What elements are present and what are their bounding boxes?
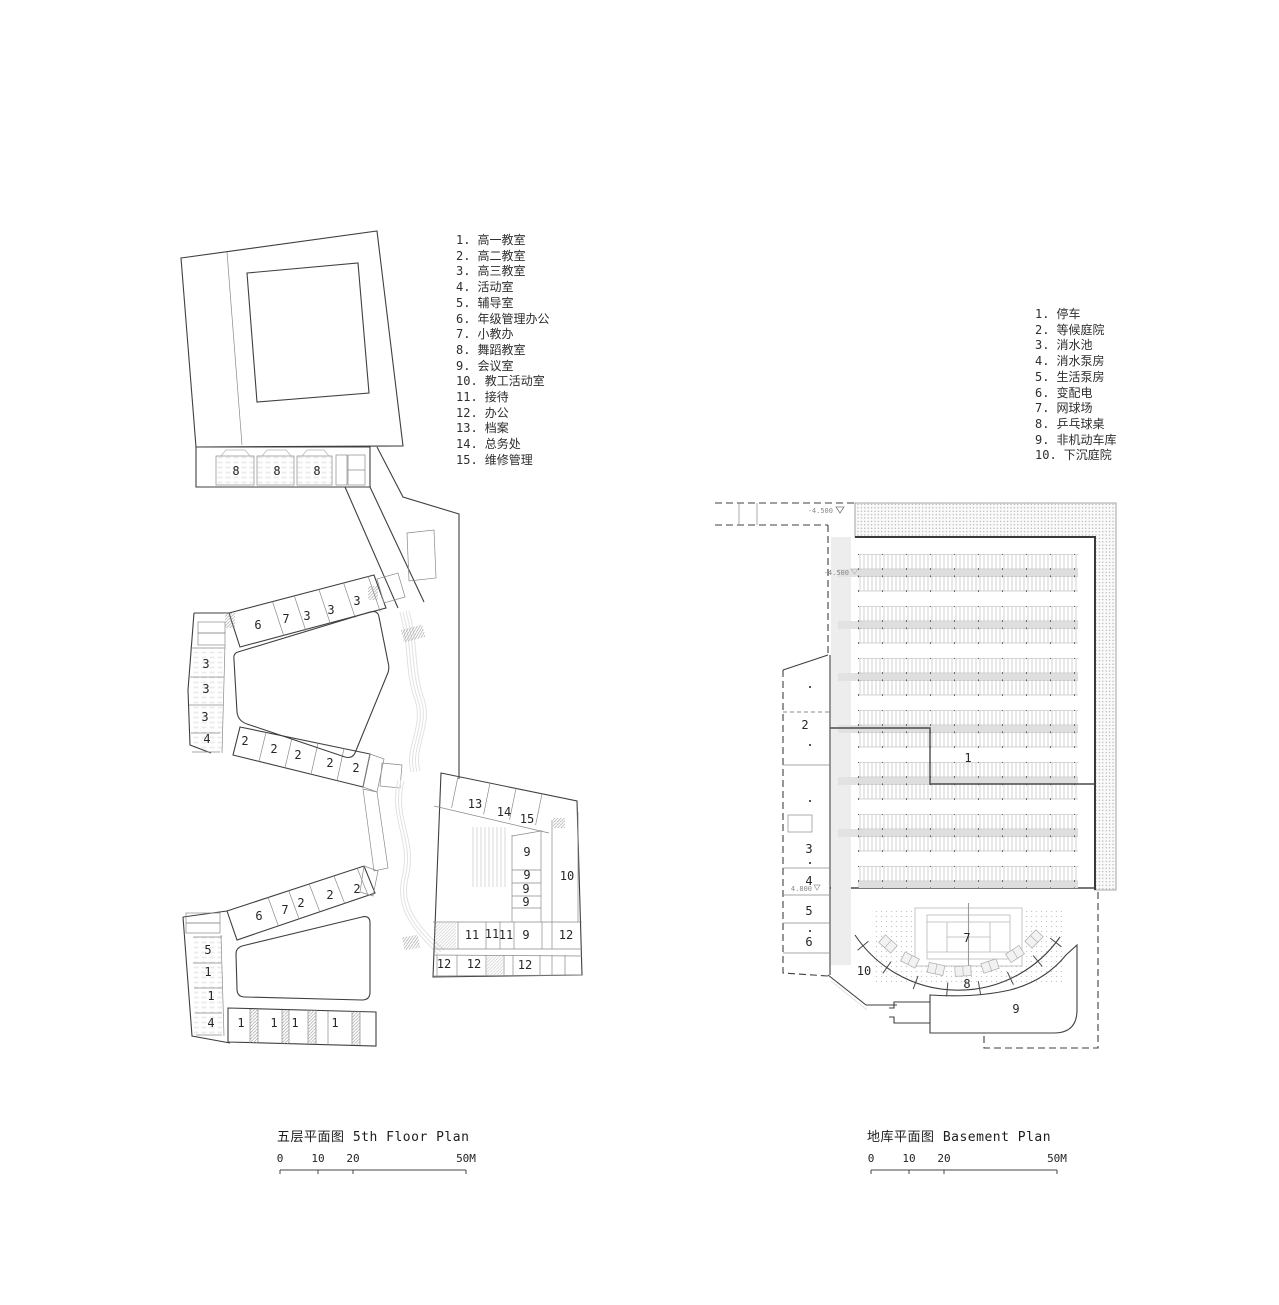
legend-number: 6. [456,312,470,328]
legend-item: 13.档案 [456,421,549,437]
room-label: 13 [468,797,482,811]
legend-item: 8.舞蹈教室 [456,343,549,359]
room-label: 4 [203,732,210,746]
room-label: 2 [326,888,333,902]
legend-number: 4. [1035,354,1049,370]
room-label: 11 [485,927,499,941]
room-label: 3 [353,594,360,608]
sunken-courtyard [828,903,1062,1010]
room-label: 3 [303,609,310,623]
scale-label: 20 [937,1152,950,1165]
legend-item: 6.年级管理办公 [456,312,549,328]
legend-item: 9.会议室 [456,359,549,375]
legend-label: 活动室 [477,280,513,296]
room-label: 8 [313,464,320,478]
legend-number: 7. [456,327,470,343]
room-label: 12 [518,958,532,972]
legend-label: 小教办 [477,327,513,343]
room-label: 4 [207,1016,214,1030]
auditorium-block [181,231,403,447]
left-scale-bar: 0102050M [277,1152,477,1174]
legend-number: 9. [456,359,470,375]
legend-label: 下沉庭院 [1064,448,1112,464]
legend-item: 1.高一教室 [456,233,549,249]
legend-label: 接待 [485,390,509,406]
left-legend: 1.高一教室2.高二教室3.高三教室4.活动室5.辅导室6.年级管理办公7.小教… [456,233,549,469]
room-label: 2 [297,896,304,910]
legend-label: 高一教室 [477,233,525,249]
room-label: 2 [326,756,333,770]
legend-number: 2. [1035,323,1049,339]
legend-number: 6. [1035,386,1049,402]
room-label: 11 [465,928,479,942]
legend-number: 1. [456,233,470,249]
legend-number: 10. [456,374,478,390]
legend-number: 3. [456,264,470,280]
legend-label: 档案 [485,421,509,437]
lower-wing [183,789,388,1046]
legend-label: 消水池 [1056,338,1092,354]
classroom-band-middle [233,727,402,792]
room-label: 6 [254,618,261,632]
room-label: 1 [331,1016,338,1030]
room-label: 9 [1012,1002,1019,1016]
room-label: 2 [241,734,248,748]
room-label: 9 [523,868,530,882]
legend-label: 辅导室 [477,296,513,312]
legend-item: 11.接待 [456,390,549,406]
room-label: 14 [497,805,511,819]
legend-item: 4.活动室 [456,280,549,296]
legend-label: 维修管理 [485,453,533,469]
legend-label: 高二教室 [477,249,525,265]
room-label: 2 [270,742,277,756]
room-label: 3 [805,842,812,856]
room-label: 9 [522,895,529,909]
scale-label: 10 [902,1152,915,1165]
legend-number: 14. [456,437,478,453]
right-plan-caption: 地库平面图 Basement Plan [867,1126,1051,1145]
diagonal-corridor [345,487,436,608]
left-plan-caption: 五层平面图 5th Floor Plan [277,1126,469,1145]
legend-label: 年级管理办公 [477,312,549,328]
legend-item: 2.高二教室 [456,249,549,265]
room-label: 2 [801,718,808,732]
legend-label: 等候庭院 [1056,323,1104,339]
legend-item: 3.高三教室 [456,264,549,280]
architectural-drawing-sheet: 8886733333342222213141599991011111191212… [0,0,1279,1305]
legend-number: 2. [456,249,470,265]
parking-stall-rows [858,554,1078,888]
room-label: 7 [282,612,289,626]
left-room-labels: 8886733333342222213141599991011111191212… [201,464,574,1030]
room-label: 12 [559,928,573,942]
drive-aisle [831,537,862,965]
legend-item: 1.停车 [1035,307,1116,323]
right-scale-bar: 0102050M [868,1152,1068,1174]
legend-number: 9. [1035,433,1049,449]
room-label: 4 [805,874,812,888]
ramp-hatch [401,624,426,642]
legend-number: 3. [1035,338,1049,354]
dance-classroom-band [196,447,370,487]
room-label: 11 [499,928,513,942]
site-boundary-line [377,447,459,779]
level-annotation: -4.500 [824,569,849,577]
legend-item: 14.总务处 [456,437,549,453]
legend-item: 8.乒乓球桌 [1035,417,1116,433]
room-label: 9 [523,845,530,859]
room-label: 12 [437,957,451,971]
room-label: 9 [522,928,529,942]
legend-label: 高三教室 [477,264,525,280]
ramp-hatch [402,935,420,951]
room-label: 1 [207,989,214,1003]
scale-label: 20 [346,1152,359,1165]
legend-label: 办公 [485,406,509,422]
room-label: 15 [520,812,534,826]
room-label: 5 [805,904,812,918]
legend-number: 4. [456,280,470,296]
room-label: 2 [352,761,359,775]
legend-number: 7. [1035,401,1049,417]
legend-number: 5. [456,296,470,312]
legend-item: 7.网球场 [1035,401,1116,417]
legend-item: 2.等候庭院 [1035,323,1116,339]
legend-number: 15. [456,453,478,469]
room-label: 10 [857,964,871,978]
scale-label: 50M [1047,1152,1067,1165]
legend-item: 10.教工活动室 [456,374,549,390]
right-legend: 1.停车2.等候庭院3.消水池4.消水泵房5.生活泵房6.变配电7.网球场8.乒… [1035,307,1116,464]
room-label: 6 [805,935,812,949]
scale-label: 0 [277,1152,284,1165]
legend-label: 总务处 [485,437,521,453]
room-label: 7 [281,903,288,917]
room-label: 1 [964,751,971,765]
legend-number: 1. [1035,307,1049,323]
legend-item: 5.辅导室 [456,296,549,312]
legend-number: 11. [456,390,478,406]
scale-label: 0 [868,1152,875,1165]
room-label: 5 [204,943,211,957]
room-label: 1 [237,1016,244,1030]
room-label: 2 [294,748,301,762]
legend-label: 网球场 [1056,401,1092,417]
legend-item: 5.生活泵房 [1035,370,1116,386]
legend-number: 8. [1035,417,1049,433]
scale-label: 10 [311,1152,324,1165]
room-label: 3 [202,657,209,671]
scale-label: 50M [456,1152,476,1165]
legend-item: 3.消水池 [1035,338,1116,354]
legend-number: 12. [456,406,478,422]
room-label: 3 [202,682,209,696]
room-label: 1 [204,965,211,979]
legend-label: 生活泵房 [1056,370,1104,386]
classroom-column-left [188,613,235,753]
legend-label: 变配电 [1056,386,1092,402]
level-annotation: -4.500 [808,507,833,515]
upper-dashed-edge [715,503,855,525]
legend-number: 10. [1035,448,1057,464]
room-label: 3 [327,603,334,617]
room-label: 1 [270,1016,277,1030]
room-label: 7 [963,931,970,945]
legend-item: 7.小教办 [456,327,549,343]
legend-number: 5. [1035,370,1049,386]
legend-item: 4.消水泵房 [1035,354,1116,370]
room-label: 1 [291,1016,298,1030]
legend-label: 停车 [1056,307,1080,323]
room-label: 6 [255,909,262,923]
legend-label: 非机动车库 [1056,433,1116,449]
legend-label: 舞蹈教室 [477,343,525,359]
room-label: 8 [273,464,280,478]
legend-number: 13. [456,421,478,437]
legend-item: 12.办公 [456,406,549,422]
legend-label: 乒乓球桌 [1056,417,1104,433]
room-label: 10 [560,869,574,883]
legend-label: 教工活动室 [485,374,545,390]
garden-path [396,611,444,954]
legend-item: 10.下沉庭院 [1035,448,1116,464]
room-label: 8 [963,977,970,991]
floor-plan-drawing: 8886733333342222213141599991011111191212… [0,0,1279,1305]
legend-item: 9.非机动车库 [1035,433,1116,449]
room-label: 8 [232,464,239,478]
room-label: 3 [201,710,208,724]
central-courtyard [234,612,389,758]
classroom-band-upper [229,573,405,647]
legend-item: 15.维修管理 [456,453,549,469]
lower-courtyard [236,917,370,1000]
legend-item: 6.变配电 [1035,386,1116,402]
legend-label: 消水泵房 [1056,354,1104,370]
room-label: 12 [467,957,481,971]
legend-label: 会议室 [477,359,513,375]
room-label: 9 [522,882,529,896]
basement-plan: -4.500-4.5004.800 12345678910 [715,503,1116,1048]
room-label: 2 [353,882,360,896]
legend-number: 8. [456,343,470,359]
